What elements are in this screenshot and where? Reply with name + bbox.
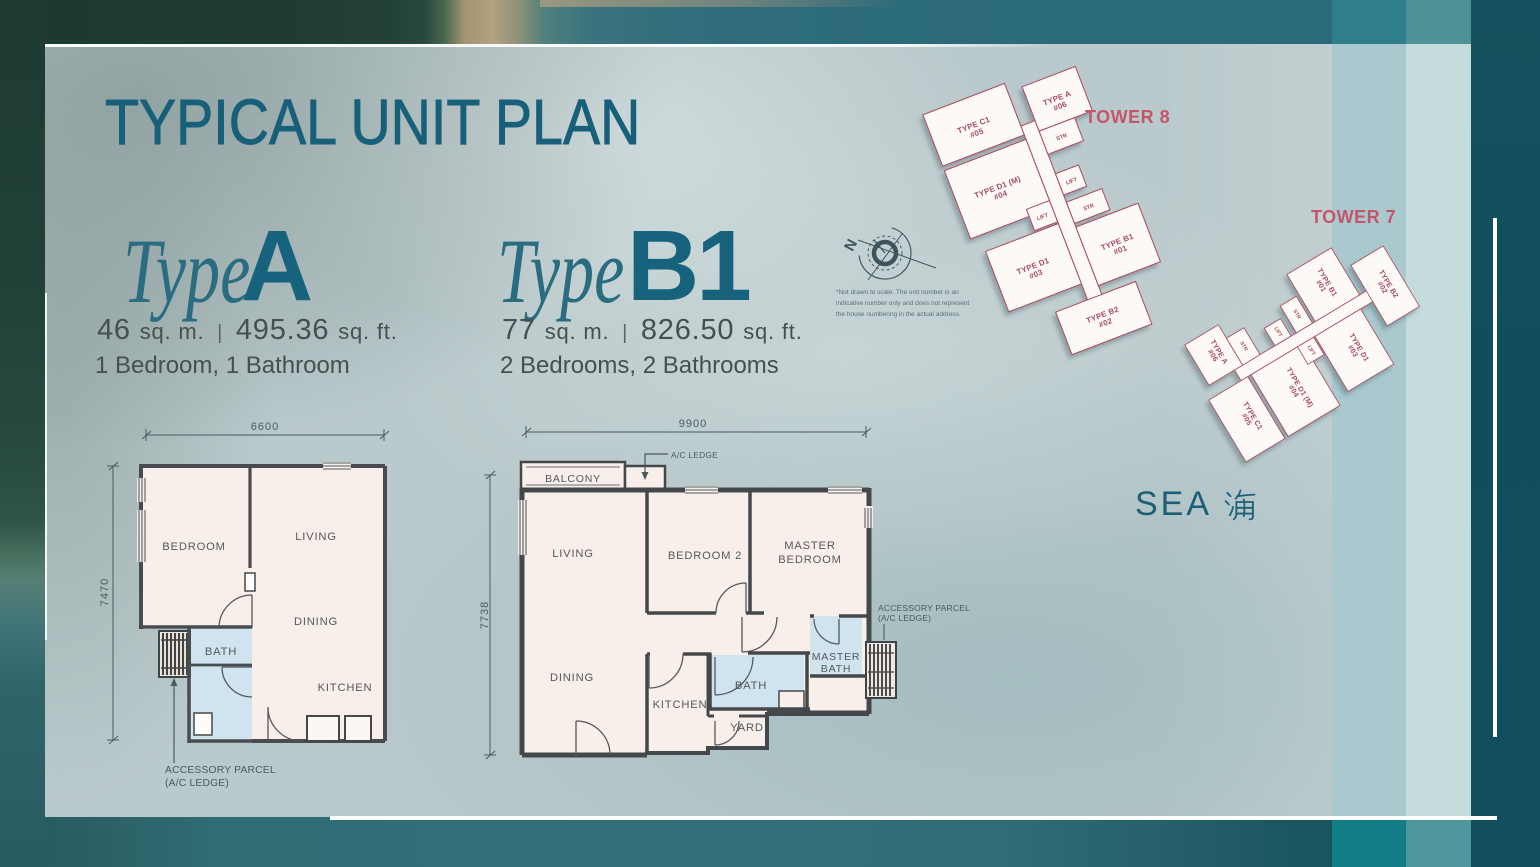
- svg-text:A/C LEDGE: A/C LEDGE: [671, 450, 718, 460]
- svg-text:ACCESSORY PARCEL: ACCESSORY PARCEL: [165, 765, 276, 776]
- svg-text:(A/C LEDGE): (A/C LEDGE): [878, 613, 931, 623]
- svg-text:KITCHEN: KITCHEN: [318, 682, 373, 694]
- svg-text:DINING: DINING: [294, 616, 338, 628]
- svg-text:(A/C LEDGE): (A/C LEDGE): [165, 778, 229, 789]
- svg-text:9900: 9900: [679, 418, 707, 430]
- svg-text:BALCONY: BALCONY: [545, 473, 601, 485]
- svg-text:BATH: BATH: [735, 680, 767, 692]
- svg-text:LIVING: LIVING: [552, 548, 593, 560]
- svg-text:MASTER: MASTER: [784, 540, 835, 552]
- svg-text:BEDROOM 2: BEDROOM 2: [668, 550, 742, 562]
- svg-text:LIVING: LIVING: [295, 531, 336, 543]
- svg-text:DINING: DINING: [550, 672, 594, 684]
- svg-text:BATH: BATH: [821, 663, 851, 675]
- svg-text:7738: 7738: [480, 601, 491, 629]
- svg-text:N: N: [841, 236, 861, 254]
- svg-text:7470: 7470: [99, 578, 111, 606]
- svg-text:BEDROOM: BEDROOM: [162, 541, 225, 553]
- svg-text:ACCESSORY PARCEL: ACCESSORY PARCEL: [878, 603, 970, 613]
- svg-text:6600: 6600: [251, 421, 279, 433]
- svg-text:KITCHEN: KITCHEN: [653, 699, 708, 711]
- svg-text:BATH: BATH: [205, 646, 237, 658]
- svg-text:MASTER: MASTER: [812, 651, 861, 663]
- svg-text:BEDROOM: BEDROOM: [778, 554, 841, 566]
- svg-text:YARD: YARD: [730, 722, 763, 734]
